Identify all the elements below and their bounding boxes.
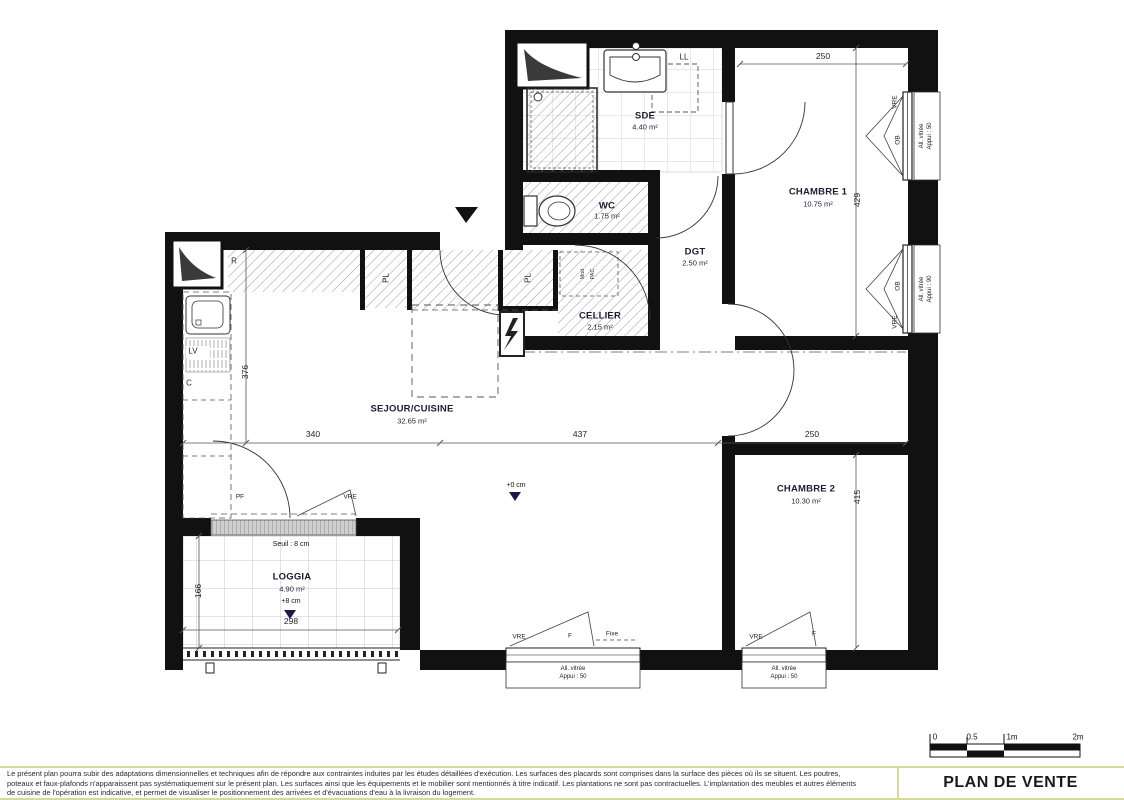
entrance-arrow-icon (455, 207, 478, 223)
window-right2-vre: VRE (891, 315, 898, 328)
room-label-dgt: DGT (685, 248, 706, 259)
dim-chambre1-width: 250 (816, 52, 830, 62)
shower-icon (527, 88, 597, 172)
fixture-label-lv: LV (188, 346, 197, 355)
room-label-sejour: SEJOUR/CUISINE (370, 405, 453, 416)
room-label-sde: SDE (635, 112, 655, 123)
room-label-chambre2: CHAMBRE 2 (777, 485, 835, 496)
floor-plan: SDE 4.40 m² WC 1.75 m² DGT 2.50 m² CHAMB… (0, 0, 1124, 800)
dim-chambre2-height: 415 (853, 490, 863, 504)
disclaimer-line-1: Le présent plan pourra subir des adaptat… (7, 769, 891, 779)
room-area-sde: 4.40 m² (632, 124, 657, 133)
window-right1-note: All. vitrée Appui : 50 (919, 122, 935, 149)
dim-chambre2-width: 250 (805, 430, 819, 440)
room-label-cellier: CELLIER (579, 312, 621, 323)
room-area-loggia: 4.90 m² (279, 586, 304, 595)
window-right2-note: All. vitrée Appui : 90 (919, 275, 935, 302)
threshold-loggia: Seuil : 8 cm (273, 541, 310, 549)
toilet-icon (524, 196, 575, 226)
window-bottom1-note: All. vitrée Appui : 50 (559, 666, 586, 682)
electric-panel-icon (500, 312, 524, 356)
level-loggia: +8 cm (281, 598, 300, 606)
loggia-railing (183, 648, 400, 673)
room-area-wc: 1.75 m² (594, 213, 619, 222)
room-area-chambre1: 10.75 m² (803, 201, 833, 210)
fixture-label-pac-1: Mod (580, 269, 586, 280)
window-loggia (211, 441, 356, 535)
window-bottom1-note-line1: All. vitrée (561, 666, 586, 672)
window-bottom1-fixe: Fixe (606, 630, 618, 637)
fixture-label-c: C (186, 378, 192, 387)
fixture-label-pl1: PL (381, 273, 390, 283)
level-marker-sejour-icon (509, 492, 521, 501)
scale-bar (930, 734, 1080, 757)
window-bottom1-f: F (568, 632, 572, 639)
fixture-label-ll: LL (680, 52, 689, 61)
dim-loggia-width: 298 (284, 617, 298, 627)
window-bottom2-note-line1: All. vitrée (772, 666, 797, 672)
disclaimer-line-3: de cuisine de l'opération est indicative… (7, 788, 891, 798)
washbasin-icon (604, 43, 666, 93)
dim-sejour-width: 340 (306, 430, 320, 440)
scale-label-0: 0 (933, 732, 937, 741)
window-bottom1-note-line2: Appui : 50 (559, 674, 586, 680)
window-bottom2-note-line2: Appui : 50 (770, 674, 797, 680)
room-area-sejour: 32.65 m² (397, 418, 427, 427)
window-right1-ob: OB (894, 135, 901, 144)
window-right1-note-line2: Appui : 50 (927, 122, 933, 149)
window-bottom2-note: All. vitrée Appui : 50 (770, 666, 797, 682)
room-area-dgt: 2.50 m² (682, 260, 707, 269)
window-right1-note-line1: All. vitrée (919, 124, 925, 149)
room-area-cellier: 2.15 m² (587, 324, 612, 333)
dim-middle-width: 437 (573, 430, 587, 440)
room-label-loggia: LOGGIA (273, 573, 312, 584)
dim-chambre1-height: 429 (853, 193, 863, 207)
window-right2-note-line1: All. vitrée (919, 277, 925, 302)
window-right2-note-line2: Appui : 90 (927, 275, 933, 302)
window-loggia-vre: VRE (343, 493, 356, 500)
fixture-label-r: R (231, 256, 237, 265)
scale-label-2m: 2m (1072, 732, 1083, 741)
dim-sejour-height: 376 (241, 365, 251, 379)
room-label-chambre1: CHAMBRE 1 (789, 188, 847, 199)
fixture-label-pl2: PL (523, 273, 532, 283)
kitchen-sink-icon (186, 296, 230, 334)
window-right2-ob: OB (894, 281, 901, 290)
footer-top-rule (0, 766, 1124, 768)
window-bottom1-vre: VRE (512, 633, 525, 640)
window-loggia-pf: PF (236, 493, 244, 500)
room-area-chambre2: 10.30 m² (791, 498, 821, 507)
dim-loggia-height: 166 (194, 584, 204, 598)
window-right1-vre: VRE (891, 95, 898, 108)
window-bottom2-vre: VRE (749, 633, 762, 640)
plan-title: PLAN DE VENTE (899, 774, 1122, 792)
fixture-label-pac-2: PAC (590, 269, 596, 280)
window-bottom2-f: F (812, 630, 816, 637)
scale-label-05: 0.5 (966, 732, 977, 741)
level-sejour: +0 cm (506, 482, 525, 490)
scale-label-1m: 1m (1006, 732, 1017, 741)
